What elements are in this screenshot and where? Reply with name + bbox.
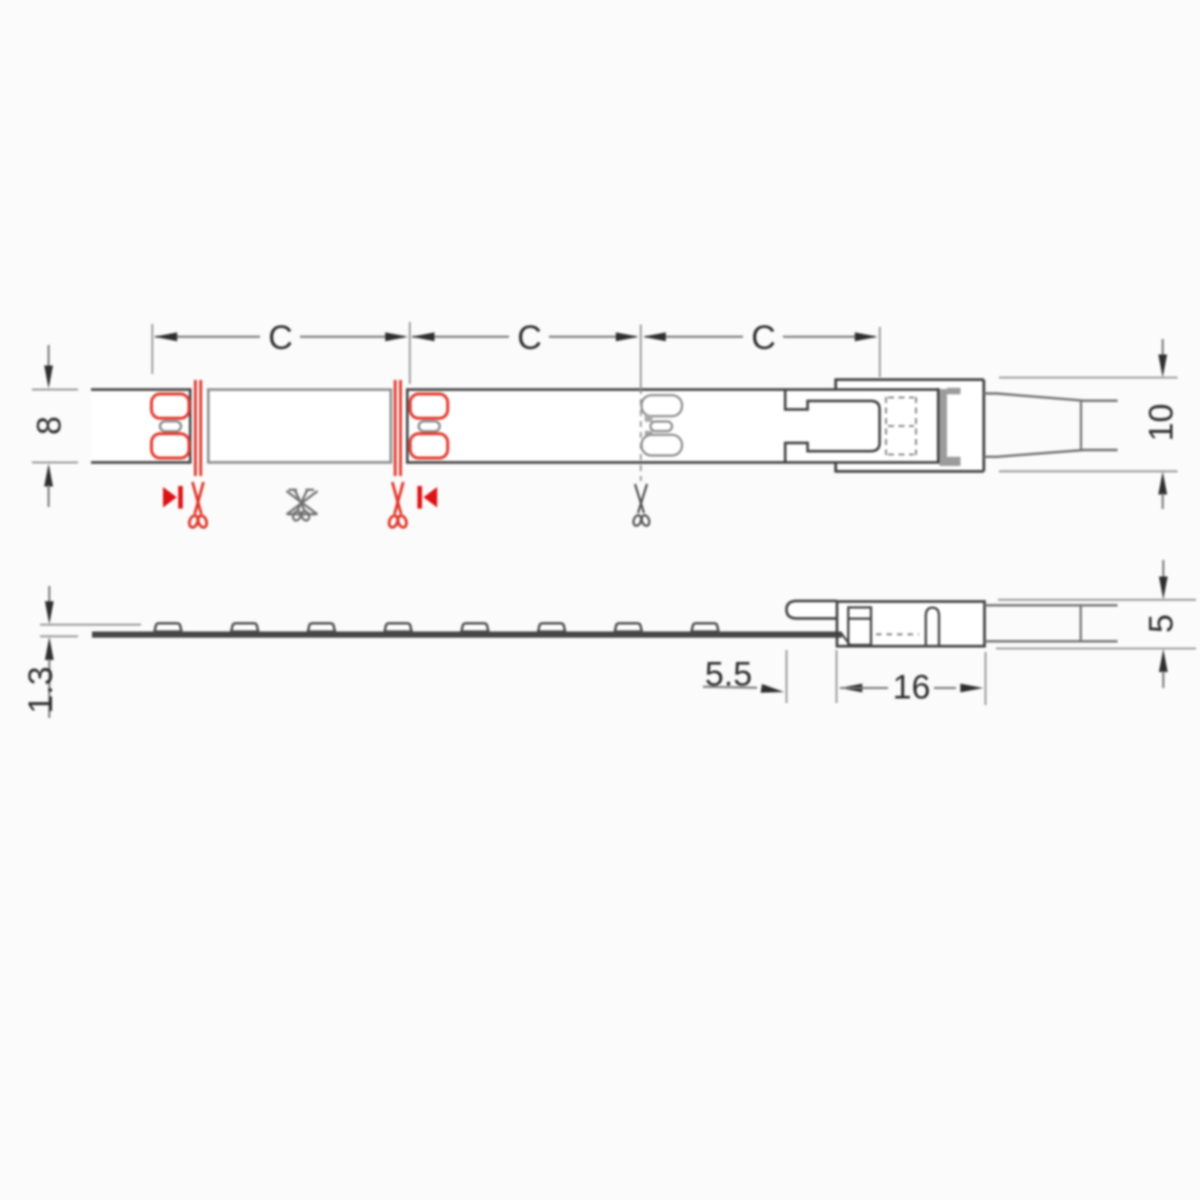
svg-text:C: C — [517, 319, 542, 357]
svg-text:8: 8 — [30, 416, 68, 435]
svg-text:16: 16 — [893, 669, 931, 707]
svg-text:C: C — [751, 319, 776, 357]
svg-text:1.3: 1.3 — [22, 666, 60, 713]
svg-text:10: 10 — [1143, 404, 1181, 442]
svg-text:5: 5 — [1143, 614, 1181, 633]
svg-text:C: C — [268, 319, 293, 357]
